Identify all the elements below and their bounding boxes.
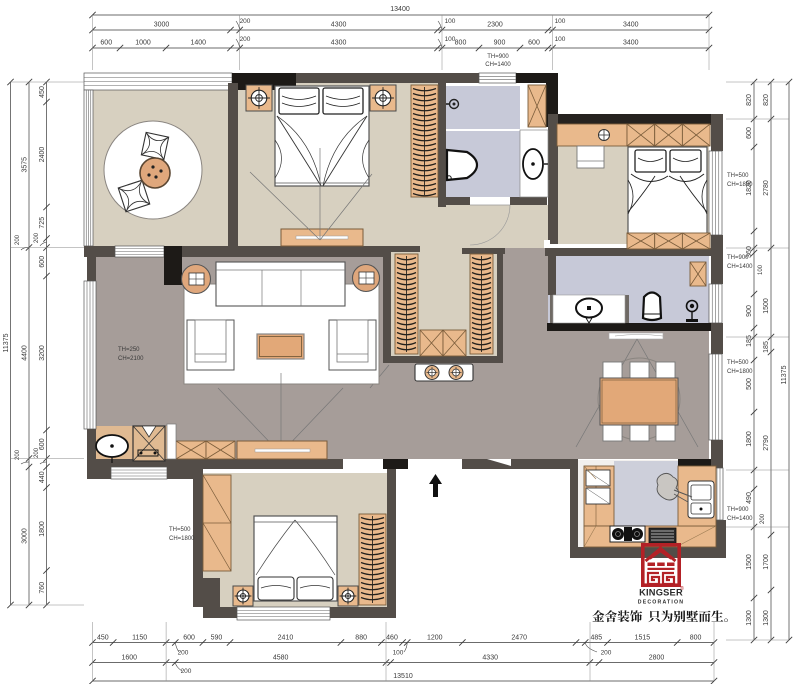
svg-text:100: 100 [393,650,404,657]
svg-text:1600: 1600 [122,655,138,662]
svg-text:CH=1800: CH=1800 [727,182,753,188]
svg-text:1200: 1200 [427,635,443,642]
svg-text:TH=500: TH=500 [727,173,749,179]
svg-text:1150: 1150 [132,635,147,642]
svg-text:460: 460 [386,635,398,642]
svg-text:2300: 2300 [487,22,503,29]
svg-text:600: 600 [39,438,46,450]
svg-text:CH=1400: CH=1400 [727,516,753,522]
svg-text:1700: 1700 [763,554,770,570]
svg-text:2410: 2410 [278,635,294,642]
svg-text:4300: 4300 [331,22,347,29]
svg-text:200: 200 [760,513,766,524]
svg-text:440: 440 [39,471,46,483]
svg-text:4580: 4580 [273,655,289,662]
svg-text:13400: 13400 [390,6,410,13]
svg-text:100: 100 [555,18,566,25]
svg-text:200: 200 [15,234,21,245]
svg-text:2780: 2780 [763,180,770,196]
svg-text:485: 485 [591,635,603,642]
svg-text:200: 200 [178,650,189,657]
svg-text:1500: 1500 [746,554,753,570]
svg-text:100: 100 [758,264,764,275]
svg-text:200: 200 [240,18,251,25]
svg-text:200: 200 [240,36,251,43]
svg-text:11375: 11375 [3,333,10,352]
svg-text:CH=1400: CH=1400 [485,62,511,68]
svg-text:®: ® [680,585,684,592]
svg-text:1300: 1300 [746,610,753,626]
svg-text:725: 725 [39,217,46,229]
svg-text:600: 600 [100,40,112,47]
svg-text:1000: 1000 [135,40,151,47]
svg-text:820: 820 [763,94,770,106]
svg-text:3000: 3000 [154,22,170,29]
svg-text:490: 490 [746,492,753,504]
svg-text:2800: 2800 [649,655,665,662]
svg-text:600: 600 [183,635,195,642]
svg-text:CH=1400: CH=1400 [727,264,753,270]
svg-text:600: 600 [39,256,46,268]
svg-text:200: 200 [181,668,192,675]
svg-text:CH=1800: CH=1800 [169,536,195,542]
svg-text:100: 100 [445,18,456,25]
svg-text:900: 900 [746,305,753,317]
svg-text:DECORATION: DECORATION [638,600,685,606]
svg-text:TH=500: TH=500 [169,527,191,533]
svg-text:4300: 4300 [331,40,347,47]
svg-text:760: 760 [39,582,46,594]
svg-text:450: 450 [97,635,109,642]
svg-text:500: 500 [746,378,753,390]
svg-text:590: 590 [211,635,223,642]
svg-text:880: 880 [355,635,367,642]
svg-text:900: 900 [494,40,506,47]
svg-text:100: 100 [445,36,456,43]
svg-text:TH=900: TH=900 [487,54,509,60]
svg-text:2400: 2400 [39,147,46,163]
svg-text:1515: 1515 [635,635,651,642]
svg-text:200: 200 [601,650,612,657]
svg-text:2470: 2470 [511,635,527,642]
svg-text:TH=250: TH=250 [118,347,140,353]
svg-text:1800: 1800 [39,521,46,537]
svg-text:11375: 11375 [781,365,788,384]
svg-text:450: 450 [39,86,46,98]
svg-text:3000: 3000 [22,528,29,544]
svg-text:800: 800 [690,635,702,642]
svg-text:3400: 3400 [623,22,639,29]
svg-text:200: 200 [34,232,40,243]
svg-text:3200: 3200 [39,345,46,361]
svg-text:200: 200 [34,447,40,458]
svg-text:4400: 4400 [22,345,29,361]
svg-text:1800: 1800 [746,431,753,447]
svg-text:TH=500: TH=500 [727,360,749,366]
svg-text:KINGSER: KINGSER [639,588,683,598]
svg-text:CH=2100: CH=2100 [118,356,144,362]
svg-text:13510: 13510 [393,673,413,680]
svg-text:4330: 4330 [482,655,498,662]
svg-text:3575: 3575 [22,157,29,173]
svg-text:100: 100 [555,36,566,43]
svg-text:185: 185 [763,341,770,353]
svg-text:TH=900: TH=900 [727,507,749,513]
svg-text:600: 600 [746,127,753,139]
svg-text:1300: 1300 [763,610,770,626]
svg-text:3400: 3400 [623,40,639,47]
svg-text:600: 600 [528,40,540,47]
svg-text:TH=900: TH=900 [727,255,749,261]
svg-text:1400: 1400 [190,40,206,47]
svg-text:820: 820 [746,94,753,106]
svg-text:2790: 2790 [763,435,770,451]
svg-text:1500: 1500 [763,298,770,314]
svg-text:800: 800 [455,40,467,47]
svg-text:CH=1800: CH=1800 [727,369,753,375]
